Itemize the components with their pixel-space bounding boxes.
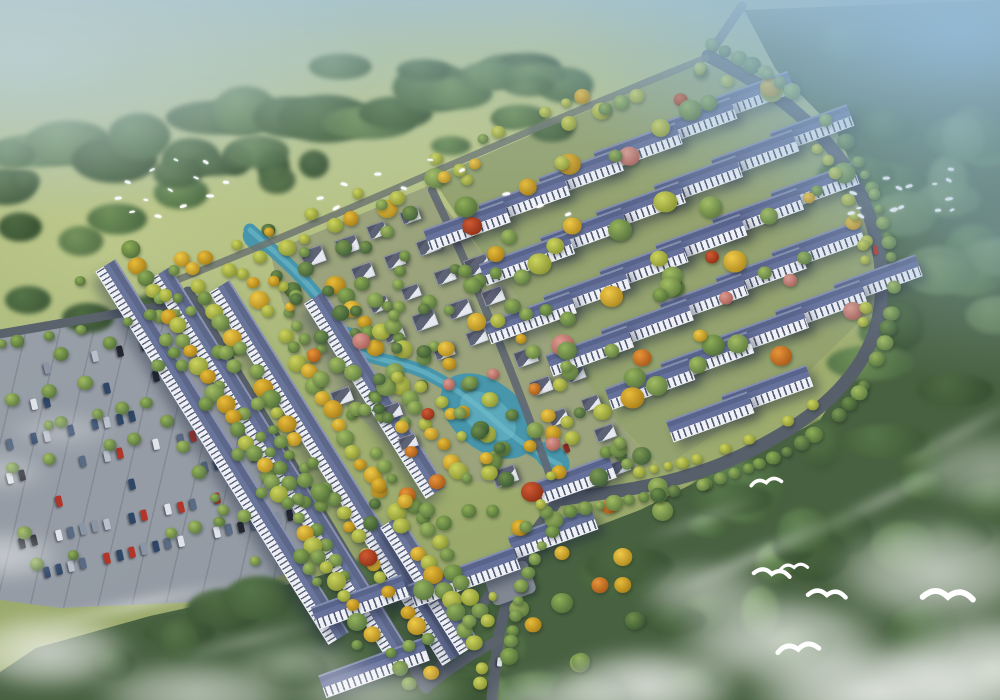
bird xyxy=(805,583,848,603)
bird xyxy=(774,635,822,658)
bird xyxy=(427,159,433,162)
bird xyxy=(502,192,510,196)
bird xyxy=(149,168,155,173)
bird xyxy=(167,188,173,193)
bird xyxy=(847,211,854,215)
bird xyxy=(857,213,865,219)
bird xyxy=(883,177,890,180)
birds-layer xyxy=(0,0,1000,700)
aerial-site-render xyxy=(0,0,1000,700)
bird xyxy=(206,194,214,197)
bird xyxy=(949,208,954,212)
bird xyxy=(849,191,857,196)
bird xyxy=(565,212,572,217)
bird xyxy=(459,167,466,172)
bird xyxy=(895,185,903,190)
bird xyxy=(374,172,381,175)
bird xyxy=(856,206,861,209)
bird xyxy=(932,182,938,185)
bird xyxy=(316,196,323,200)
bird xyxy=(748,472,784,490)
bird xyxy=(905,184,912,189)
bird xyxy=(536,203,544,209)
bird xyxy=(154,214,161,218)
bird xyxy=(898,205,905,210)
bird xyxy=(945,197,953,201)
bird xyxy=(173,158,179,162)
bird xyxy=(890,208,896,211)
bird xyxy=(179,204,186,208)
bird xyxy=(125,180,132,184)
bird xyxy=(129,210,135,213)
bird xyxy=(143,198,149,201)
bird xyxy=(779,559,810,573)
bird xyxy=(332,205,340,211)
bird xyxy=(193,176,199,181)
bird xyxy=(919,581,976,606)
bird xyxy=(947,167,953,170)
bird xyxy=(935,208,941,211)
bird xyxy=(340,182,347,186)
bird xyxy=(223,181,229,184)
bird xyxy=(203,159,210,164)
bird xyxy=(115,196,122,199)
bird xyxy=(946,178,953,183)
bird xyxy=(401,186,408,190)
